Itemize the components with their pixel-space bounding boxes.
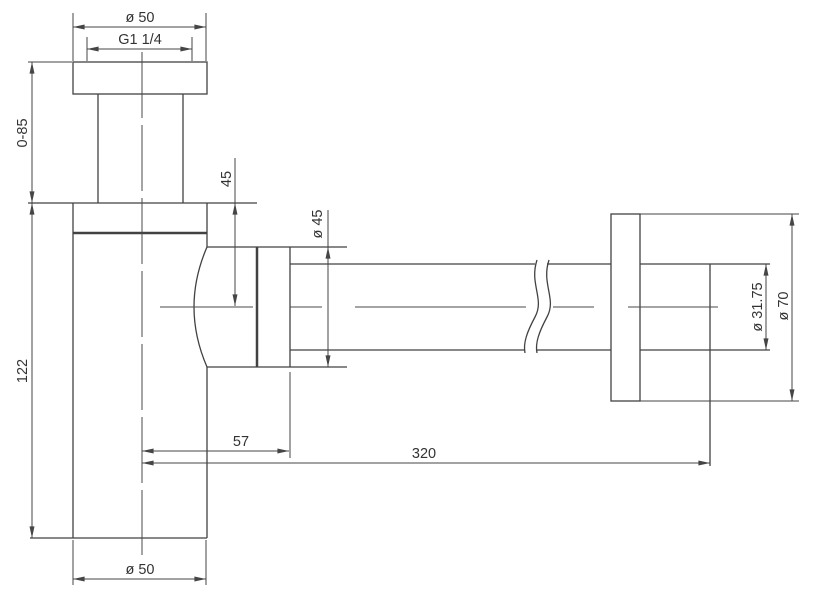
inlet-flange [73, 62, 207, 94]
dim-axis-to-wall: 320 [142, 446, 710, 463]
center-lines [142, 52, 718, 555]
dim-label-axis-to-nut: 57 [233, 434, 249, 450]
dim-nut-diameter: ø 45 [310, 209, 328, 367]
dim-label-adjustable-height: 0-85 [15, 118, 31, 147]
dim-thread-size: G1 1/4 [87, 32, 192, 61]
dim-label-cup-diameter: ø 50 [125, 562, 154, 578]
dim-outlet-pipe-diameter: ø 31.75 [750, 264, 766, 350]
dim-label-axis-to-wall: 320 [412, 446, 436, 462]
dimensions: ø 50 G1 1/4 0-85 122 45 ø 45 [15, 10, 792, 585]
dim-label-inlet-to-outlet-axis: 45 [219, 171, 235, 187]
dim-adjustable-height: 0-85 [15, 62, 72, 203]
dim-wall-flange-diameter: ø 70 [776, 214, 792, 401]
pipe-break-symbol [524, 260, 550, 353]
drawing-canvas: ø 50 G1 1/4 0-85 122 45 ø 45 [0, 0, 824, 600]
inlet-tube [98, 94, 183, 203]
part-outline [28, 62, 799, 538]
dim-label-inlet-flange-diameter: ø 50 [125, 10, 154, 26]
dim-label-outlet-pipe-diameter: ø 31.75 [750, 282, 766, 331]
trap-cup [30, 203, 207, 538]
dim-label-body-height: 122 [15, 359, 31, 383]
technical-drawing: ø 50 G1 1/4 0-85 122 45 ø 45 [0, 0, 824, 600]
dim-label-nut-diameter: ø 45 [310, 209, 326, 238]
dim-label-wall-flange-diameter: ø 70 [776, 291, 792, 320]
dim-body-height: 122 [15, 203, 32, 538]
dim-label-thread-size: G1 1/4 [118, 32, 162, 48]
dim-inlet-to-outlet-axis: 45 [219, 158, 235, 306]
dim-cup-diameter: ø 50 [73, 540, 206, 585]
dim-axis-to-nut: 57 [142, 372, 290, 458]
